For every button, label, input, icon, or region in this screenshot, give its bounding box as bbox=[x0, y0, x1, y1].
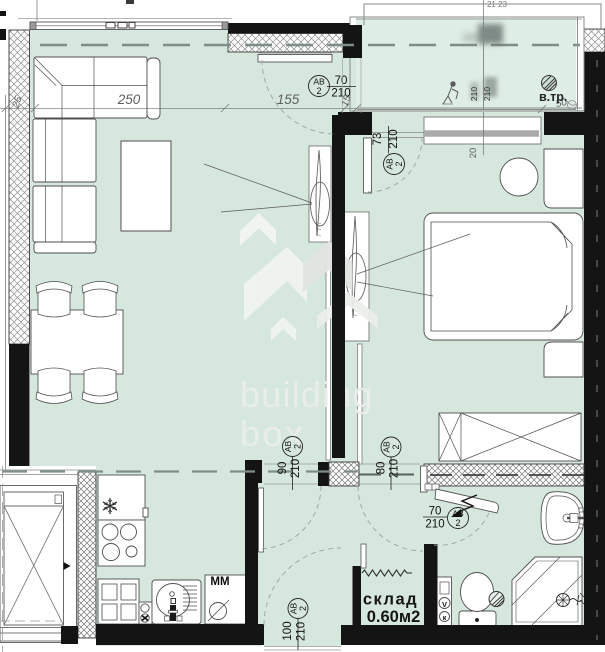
svg-text:210: 210 bbox=[388, 129, 400, 148]
svg-text:АВ: АВ bbox=[283, 441, 293, 453]
svg-text:2: 2 bbox=[293, 444, 303, 449]
svg-text:210: 210 bbox=[331, 88, 350, 100]
svg-text:210: 210 bbox=[482, 87, 492, 101]
svg-text:210: 210 bbox=[290, 459, 302, 478]
svg-text:к: к bbox=[443, 615, 447, 622]
svg-text:АВ: АВ bbox=[385, 158, 395, 170]
svg-text:100: 100 bbox=[282, 621, 294, 640]
svg-text:0.60м2: 0.60м2 bbox=[367, 608, 421, 626]
svg-text:80: 80 bbox=[376, 462, 388, 475]
svg-text:ММ: ММ bbox=[210, 576, 229, 588]
svg-text:210: 210 bbox=[296, 622, 308, 641]
svg-text:АВ: АВ bbox=[313, 77, 325, 87]
svg-text:21 23: 21 23 bbox=[487, 0, 508, 9]
svg-text:90: 90 bbox=[277, 462, 289, 475]
svg-text:в.тр.: в.тр. bbox=[539, 90, 567, 104]
svg-text:20: 20 bbox=[468, 148, 479, 159]
svg-text:2: 2 bbox=[391, 444, 401, 449]
svg-text:АВ: АВ bbox=[382, 441, 392, 453]
svg-text:73: 73 bbox=[372, 133, 384, 146]
svg-text:210: 210 bbox=[389, 459, 401, 478]
svg-text:2: 2 bbox=[455, 518, 460, 528]
svg-text:210: 210 bbox=[469, 87, 479, 101]
svg-text:2: 2 bbox=[298, 606, 308, 611]
svg-text:V: V bbox=[442, 600, 447, 609]
svg-text:250: 250 bbox=[117, 92, 141, 107]
svg-text:70: 70 bbox=[429, 506, 442, 518]
svg-text:2: 2 bbox=[316, 86, 321, 96]
svg-text:70: 70 bbox=[335, 75, 348, 87]
svg-text:2: 2 bbox=[394, 161, 404, 166]
svg-text:АВ: АВ bbox=[452, 509, 464, 519]
svg-text:210: 210 bbox=[425, 519, 444, 531]
svg-text:155: 155 bbox=[277, 92, 300, 107]
svg-text:АВ: АВ bbox=[289, 603, 299, 615]
svg-text:building: building bbox=[240, 374, 374, 415]
svg-text:склад: склад bbox=[363, 591, 418, 609]
